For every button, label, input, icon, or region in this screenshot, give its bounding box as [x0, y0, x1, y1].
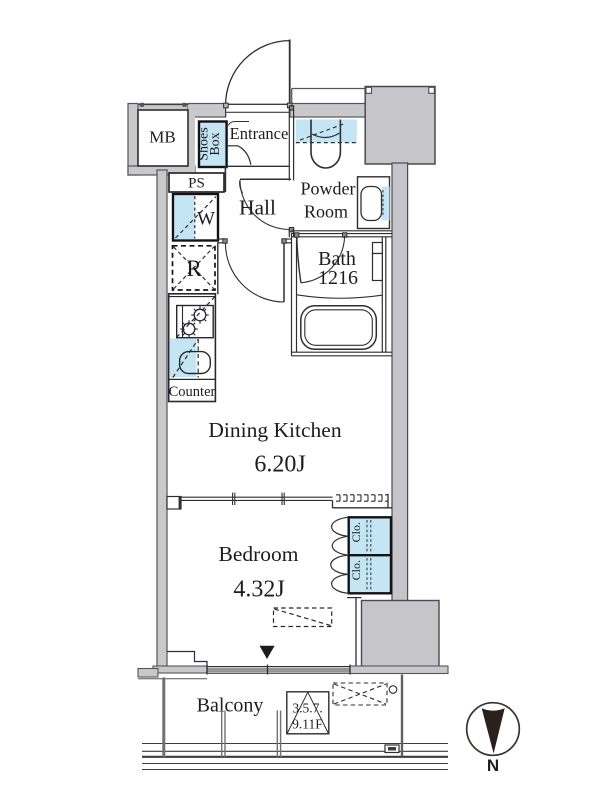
svg-text:Clo.: Clo.: [349, 560, 363, 580]
svg-text:Bedroom: Bedroom: [218, 542, 298, 566]
svg-text:Counter: Counter: [169, 384, 216, 400]
svg-text:4.32J: 4.32J: [233, 577, 284, 603]
svg-text:1216: 1216: [318, 267, 358, 289]
svg-text:Balcony: Balcony: [197, 695, 264, 717]
svg-text:R: R: [186, 256, 202, 281]
svg-text:W: W: [197, 209, 215, 230]
svg-text:Entrance: Entrance: [230, 124, 289, 143]
svg-text:3.5.7.: 3.5.7.: [292, 701, 322, 716]
svg-text:6.20J: 6.20J: [254, 452, 305, 478]
svg-text:PS: PS: [188, 176, 205, 192]
svg-text:N: N: [487, 756, 499, 775]
svg-text:Hall: Hall: [239, 196, 276, 220]
svg-text:Box: Box: [208, 132, 223, 155]
svg-text:Powder: Powder: [301, 179, 356, 199]
svg-text:MB: MB: [149, 128, 175, 147]
svg-text:Clo.: Clo.: [349, 522, 363, 542]
svg-text:Room: Room: [304, 202, 348, 222]
svg-text:Dining Kitchen: Dining Kitchen: [208, 418, 341, 442]
svg-text:9.11F: 9.11F: [292, 717, 323, 732]
